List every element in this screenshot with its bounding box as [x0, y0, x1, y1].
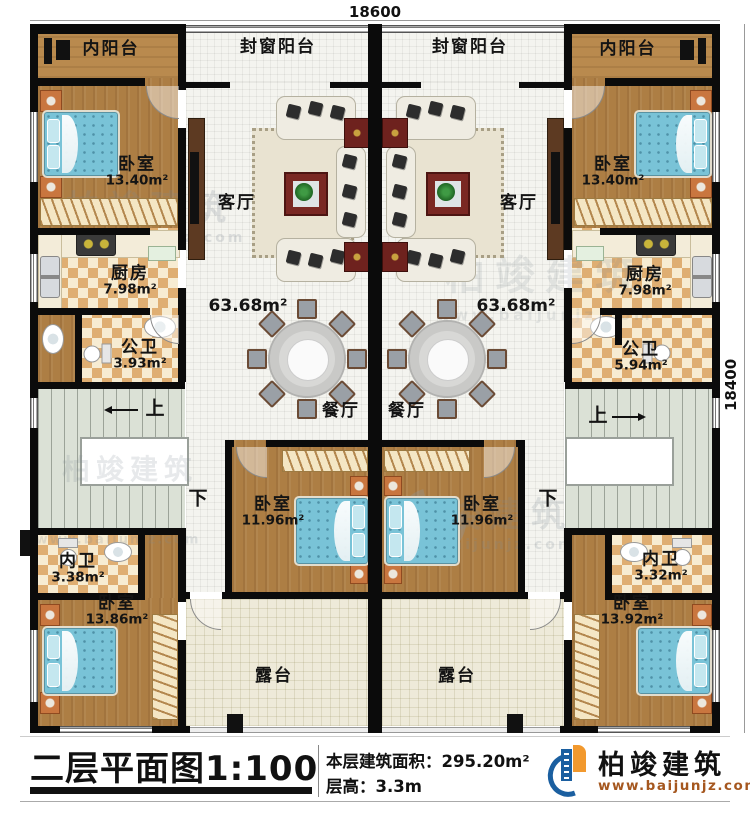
wall — [186, 592, 190, 599]
party-wall — [368, 24, 382, 733]
label-bedroom-top-right: 卧室13.40m² — [582, 156, 645, 189]
stair-arrow-head — [638, 413, 646, 421]
wardrobe — [40, 198, 178, 226]
wardrobe — [384, 450, 470, 472]
label-public-bath-left: 公卫3.93m² — [113, 339, 166, 372]
label-inner-balcony-left: 内阳台 — [83, 40, 140, 58]
wall — [178, 528, 186, 602]
label-living-left: 客厅 — [218, 194, 256, 212]
stove — [636, 232, 676, 256]
wall — [560, 592, 564, 599]
label-area-right: 63.68m² — [477, 297, 556, 315]
wall — [518, 440, 525, 599]
armchairs — [336, 146, 366, 238]
window — [712, 630, 720, 702]
bed — [384, 496, 460, 566]
wall — [38, 528, 185, 535]
window — [30, 254, 38, 302]
label-sealed-balcony-left: 封窗阳台 — [240, 38, 316, 56]
watermark-brand: 柏竣建筑 — [62, 448, 198, 488]
label-bedroom-top-left: 卧室13.40m² — [106, 156, 169, 189]
chair — [347, 349, 367, 369]
bed — [294, 496, 370, 566]
wall — [266, 440, 371, 447]
label-bedroom-bottom-left: 卧室13.86m² — [86, 595, 149, 628]
wardrobe — [152, 614, 178, 720]
nightstand — [690, 176, 712, 198]
bath-sink — [104, 542, 132, 562]
label-terrace-right: 露台 — [438, 667, 476, 685]
nightstand — [350, 564, 368, 584]
dimension-right: 18400 — [722, 340, 738, 430]
window — [30, 112, 38, 182]
chair — [487, 349, 507, 369]
label-inner-balcony-right: 内阳台 — [600, 40, 657, 58]
label-dining-left: 餐厅 — [322, 402, 360, 420]
wall — [222, 592, 368, 599]
stair-arrow — [112, 409, 138, 411]
stair-arrow-head — [104, 406, 112, 414]
wall — [565, 382, 712, 389]
divider — [20, 801, 730, 802]
wall — [178, 228, 186, 250]
wall — [38, 308, 150, 315]
plan-title: 二层平面图1:100 — [30, 741, 318, 790]
sofa — [396, 96, 476, 140]
floor-plan: 18600 18400 柏竣建筑 www.baijunjz.com 柏竣建筑 w… — [0, 0, 750, 813]
wall — [516, 440, 525, 447]
wardrobe — [574, 614, 600, 720]
wall — [178, 128, 186, 228]
chair — [297, 299, 317, 319]
wall — [564, 288, 572, 382]
wall — [227, 714, 243, 733]
balcony-furniture — [44, 38, 52, 64]
nightstand — [40, 604, 60, 626]
balcony-furniture — [56, 40, 70, 60]
label-dining-right: 餐厅 — [388, 402, 426, 420]
wall — [330, 82, 371, 88]
label-public-bath-right: 公卫5.94m² — [614, 341, 667, 374]
wall — [178, 32, 186, 90]
vanity-sink — [42, 324, 64, 354]
bed — [636, 626, 712, 696]
wardrobe — [574, 198, 712, 226]
nightstand — [690, 90, 712, 112]
wall — [564, 32, 572, 90]
floor-mat — [344, 118, 370, 148]
plant — [437, 183, 455, 201]
label-terrace-left: 露台 — [255, 667, 293, 685]
label-bedroom-bottom-right: 卧室13.92m² — [601, 595, 664, 628]
window — [712, 112, 720, 182]
window — [186, 25, 371, 33]
wall — [564, 24, 720, 34]
company-website: www.baijunjz.com — [598, 778, 750, 794]
stair-void-right — [565, 437, 674, 486]
wall — [225, 440, 234, 447]
wall — [564, 228, 572, 250]
wall — [381, 440, 484, 447]
plant — [295, 183, 313, 201]
window — [30, 398, 38, 428]
divider — [318, 745, 319, 797]
wardrobe — [282, 450, 368, 472]
bed — [634, 110, 712, 178]
floor-height-text: 层高：3.3m — [326, 773, 422, 797]
fridge — [148, 246, 176, 261]
fridge — [576, 246, 604, 261]
window — [598, 726, 690, 733]
label-bedroom-mid-right: 卧室11.96m² — [451, 496, 514, 529]
balcony-furniture — [698, 38, 706, 64]
floor-mat — [382, 242, 408, 272]
wall — [600, 228, 712, 235]
wall — [38, 382, 185, 389]
window — [712, 254, 720, 302]
company-name: 柏竣建筑 — [598, 743, 726, 782]
kitchen-sink — [692, 256, 712, 298]
wall — [138, 535, 145, 598]
wall — [382, 592, 528, 599]
wall — [178, 288, 186, 382]
tv — [190, 152, 199, 224]
label-stairs-down-right: 下 — [538, 489, 557, 510]
label-ensuite-bath-right: 内卫3.32m² — [634, 551, 687, 584]
chair — [437, 399, 457, 419]
armchairs — [386, 146, 416, 238]
nightstand — [692, 604, 712, 626]
sofa — [396, 238, 476, 282]
title-underline — [30, 787, 312, 794]
label-bedroom-mid-left: 卧室11.96m² — [242, 496, 305, 529]
dimension-line-right — [744, 24, 745, 733]
wall — [564, 528, 572, 602]
wall — [38, 78, 145, 86]
wall — [381, 82, 421, 88]
stair-arrow — [612, 416, 638, 418]
chair — [437, 299, 457, 319]
toilet — [85, 344, 112, 364]
window — [381, 25, 564, 33]
wall — [75, 315, 82, 382]
label-stairs-up-right: 上 — [588, 406, 607, 427]
wall — [605, 535, 612, 598]
label-kitchen-right: 厨房7.98m² — [618, 266, 671, 299]
bed — [42, 626, 118, 696]
wall — [38, 228, 150, 235]
wall — [605, 78, 712, 86]
floor-mat — [344, 242, 370, 272]
label-living-right: 客厅 — [500, 194, 538, 212]
wall — [565, 528, 712, 535]
dimension-line-top — [30, 20, 720, 21]
label-ensuite-bath-left: 内卫3.38m² — [51, 553, 104, 586]
tv — [551, 152, 560, 224]
label-stairs-up-left: 上 — [145, 399, 164, 420]
kitchen-sink — [40, 256, 60, 298]
dimension-top: 18600 — [340, 3, 410, 21]
label-area-left: 63.68m² — [209, 297, 288, 315]
chair — [387, 349, 407, 369]
chair — [247, 349, 267, 369]
label-kitchen-left: 厨房7.98m² — [103, 265, 156, 298]
balcony-furniture — [680, 40, 694, 60]
nightstand — [40, 90, 62, 112]
title-block: 二层平面图1:100 本层建筑面积：295.20m² 层高：3.3m 柏竣建筑 … — [0, 733, 750, 813]
divider — [20, 736, 730, 737]
wall — [507, 714, 523, 733]
stove — [76, 232, 116, 256]
wall — [20, 530, 30, 556]
nightstand — [384, 564, 402, 584]
wall — [178, 640, 186, 726]
wall — [225, 440, 232, 599]
wall — [564, 640, 572, 726]
chair — [297, 399, 317, 419]
floor-mat — [382, 118, 408, 148]
wall — [30, 24, 186, 34]
nightstand — [384, 476, 402, 496]
wall — [600, 308, 712, 315]
floor-area-text: 本层建筑面积：295.20m² — [326, 748, 530, 772]
label-sealed-balcony-right: 封窗阳台 — [432, 38, 508, 56]
wall — [186, 82, 230, 88]
nightstand — [40, 176, 62, 198]
company-logo-icon — [548, 745, 592, 793]
wall — [519, 82, 564, 88]
window — [30, 630, 38, 702]
window — [60, 726, 152, 733]
wall — [564, 128, 572, 228]
nightstand — [350, 476, 368, 496]
label-stairs-down-left: 下 — [188, 489, 207, 510]
window — [712, 398, 720, 428]
